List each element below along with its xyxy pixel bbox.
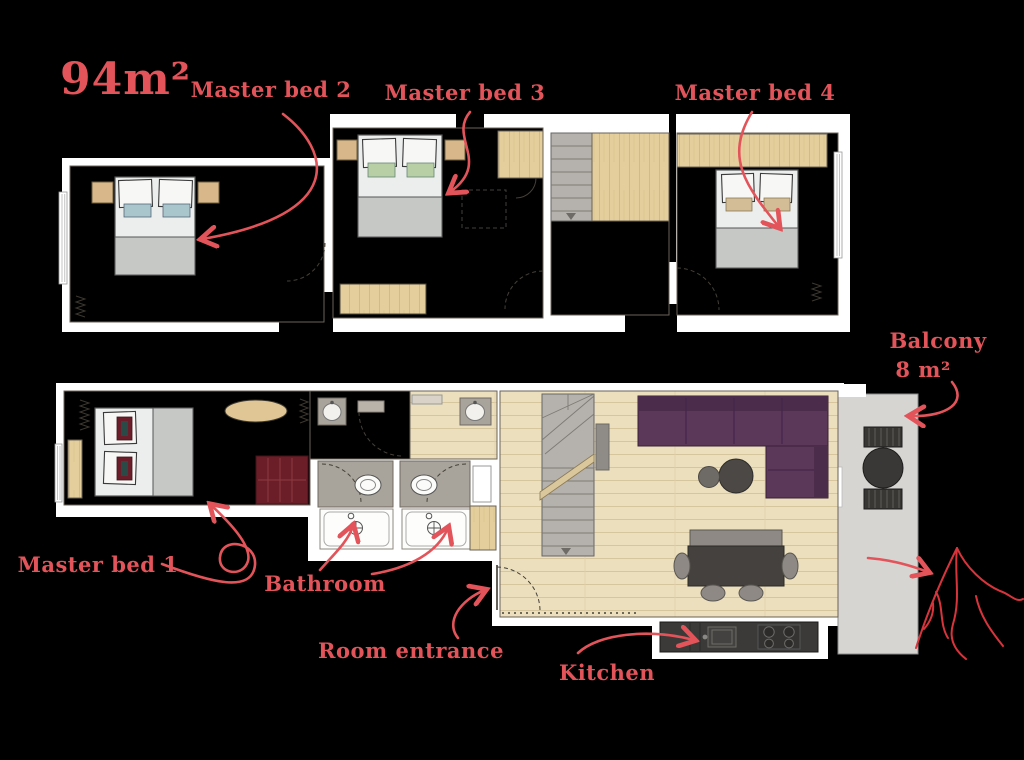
toilet-icon — [355, 475, 381, 495]
bed-icon — [115, 177, 195, 275]
washbasin-icon — [460, 398, 491, 425]
hob-icon — [758, 625, 800, 649]
balcony-table-icon — [863, 448, 903, 488]
nightstand-icon — [337, 140, 357, 160]
label-master-bed-1: Master bed 1 — [18, 552, 179, 577]
coffee-table-icon — [719, 459, 753, 493]
headboard-panel — [677, 134, 827, 167]
window — [834, 152, 842, 258]
sink-icon — [703, 627, 736, 647]
chair-icon — [674, 553, 690, 579]
wall-block — [596, 424, 609, 470]
floor-plan-page: 94m² Master bed 2 Master bed 3 Master be… — [0, 0, 1024, 760]
label-master-bed-4: Master bed 4 — [675, 80, 836, 105]
room-master-bed-2 — [59, 166, 325, 322]
nightstand-icon — [198, 182, 219, 203]
upper-stair-hall — [551, 133, 669, 315]
bench-icon — [225, 400, 287, 422]
bed-icon — [716, 170, 798, 268]
room-master-bed-3 — [333, 128, 543, 318]
living-area — [497, 391, 838, 652]
chair-icon — [739, 585, 763, 601]
label-balcony: Balcony — [889, 328, 986, 353]
bed-icon — [358, 135, 442, 237]
mountain-sketch-icon — [916, 548, 1023, 659]
bathroom-unit — [318, 461, 393, 549]
label-room-entrance: Room entrance — [318, 638, 504, 663]
coffee-table-icon — [699, 467, 720, 488]
balcony-chair-icon — [864, 427, 902, 447]
bathtub-icon — [320, 509, 393, 549]
nightstand-icon — [92, 182, 113, 203]
wood-landing — [498, 131, 543, 178]
label-master-bed-2: Master bed 2 — [191, 77, 352, 102]
bench-icon — [340, 284, 426, 314]
label-master-bed-3: Master bed 3 — [385, 80, 546, 105]
stairs-icon — [540, 394, 594, 556]
wall-segment — [838, 384, 866, 397]
toilet-icon — [411, 475, 437, 495]
label-balcony-size: 8 m² — [895, 357, 950, 382]
area-label: 94m² — [60, 54, 191, 105]
shelf-icon — [358, 401, 384, 412]
chair-icon — [782, 553, 798, 579]
nightstand-icon — [445, 140, 465, 160]
room-master-bed-1 — [55, 391, 310, 505]
label-bathroom: Bathroom — [264, 571, 386, 596]
room-master-bed-4 — [677, 133, 842, 315]
wood-cabinet-icon — [470, 506, 496, 550]
wardrobe-icon — [68, 440, 82, 498]
window — [59, 192, 67, 284]
bed-icon — [95, 408, 193, 496]
floor-plan-canvas: 94m² Master bed 2 Master bed 3 Master be… — [0, 0, 1024, 760]
armchair-icon — [256, 456, 308, 504]
bathroom-unit — [400, 461, 470, 549]
stairs-icon — [551, 133, 592, 221]
bathtub-icon — [402, 509, 470, 549]
chair-icon — [701, 585, 725, 601]
window — [55, 444, 62, 502]
upper-floor-plan — [59, 110, 850, 334]
column — [473, 466, 491, 502]
wood-landing — [592, 133, 669, 221]
lower-floor-plan — [55, 383, 918, 659]
label-kitchen: Kitchen — [559, 660, 655, 685]
balcony-chair-icon — [864, 489, 902, 509]
shelf-icon — [412, 395, 442, 404]
washbasin-icon — [318, 398, 346, 425]
